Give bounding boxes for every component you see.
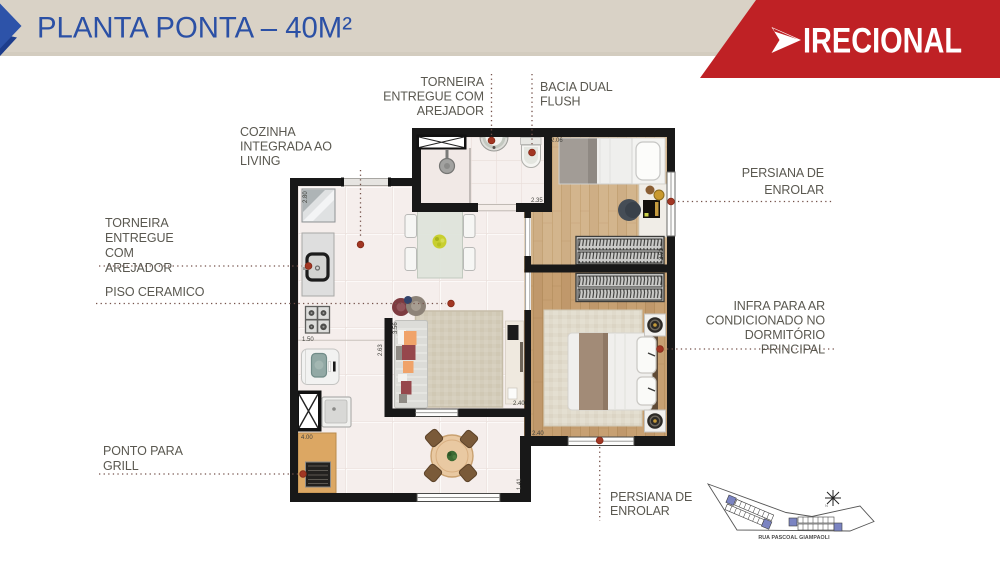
svg-text:ENTREGUE: ENTREGUE [105, 231, 174, 245]
svg-text:PONTO PARA: PONTO PARA [103, 444, 184, 458]
svg-text:BACIA DUAL: BACIA DUAL [540, 80, 613, 94]
svg-text:ENROLAR: ENROLAR [610, 504, 670, 518]
svg-text:COZINHA: COZINHA [240, 125, 296, 139]
svg-text:2.40: 2.40 [513, 401, 525, 407]
svg-text:TORNEIRA: TORNEIRA [105, 216, 169, 230]
svg-text:INTEGRADA AO: INTEGRADA AO [240, 140, 332, 154]
svg-text:1.41: 1.41 [517, 478, 523, 490]
svg-text:2.40: 2.40 [532, 431, 544, 437]
svg-text:ENROLAR: ENROLAR [764, 183, 824, 197]
svg-text:TORNEIRA: TORNEIRA [420, 75, 484, 89]
svg-text:N: N [825, 503, 828, 508]
svg-text:2.52: 2.52 [659, 248, 665, 260]
svg-text:AREJADOR: AREJADOR [105, 261, 172, 275]
svg-text:2.63: 2.63 [378, 344, 384, 356]
svg-text:AREJADOR: AREJADOR [417, 104, 484, 118]
svg-text:IRECIONAL: IRECIONAL [803, 22, 962, 61]
svg-text:RUA PASCOAL GIAMPAOLI: RUA PASCOAL GIAMPAOLI [758, 535, 830, 541]
svg-text:ENTREGUE COM: ENTREGUE COM [383, 90, 484, 104]
svg-text:LIVING: LIVING [240, 154, 280, 168]
svg-text:2.35: 2.35 [531, 198, 543, 204]
svg-text:PERSIANA DE: PERSIANA DE [742, 166, 824, 180]
svg-text:DORMITÓRIO: DORMITÓRIO [745, 327, 826, 342]
svg-text:PLANTA PONTA – 40M²: PLANTA PONTA – 40M² [37, 12, 352, 45]
svg-text:1.50: 1.50 [302, 337, 314, 343]
svg-text:PERSIANA DE: PERSIANA DE [610, 490, 692, 504]
svg-text:GRILL: GRILL [103, 459, 139, 473]
svg-text:COM: COM [105, 246, 134, 260]
svg-text:2.80: 2.80 [303, 191, 309, 203]
svg-text:3.56: 3.56 [393, 322, 399, 334]
svg-text:4.00: 4.00 [301, 435, 313, 441]
svg-text:INFRA PARA AR: INFRA PARA AR [733, 299, 825, 313]
svg-text:PISO CERAMICO: PISO CERAMICO [105, 285, 205, 299]
svg-text:PRINCIPAL: PRINCIPAL [761, 343, 825, 357]
svg-text:2.06: 2.06 [551, 138, 563, 144]
svg-text:FLUSH: FLUSH [540, 95, 581, 109]
svg-text:CONDICIONADO NO: CONDICIONADO NO [706, 314, 826, 328]
